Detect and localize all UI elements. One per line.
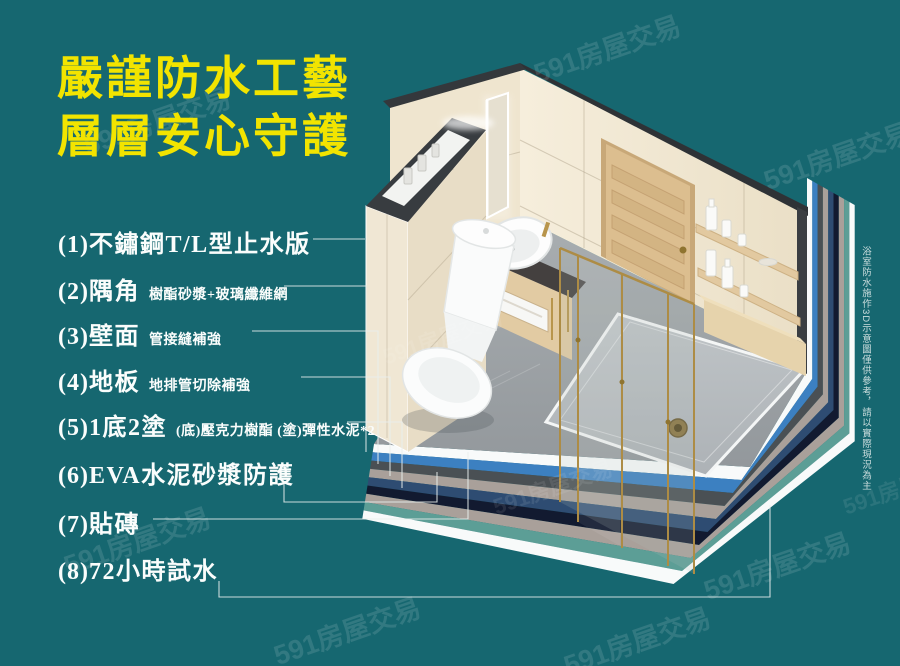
list-item-5: (5) 1底2塗 (底)壓克力樹酯 (塗)彈性水泥*2 (58, 407, 375, 442)
flush-button (483, 228, 489, 234)
item-label: EVA水泥砂漿防護 (89, 455, 294, 490)
page-title: 嚴謹防水工藝 層層安心守護 (57, 50, 351, 166)
item-label: 隅角 (89, 271, 140, 306)
glass-sheen (578, 256, 620, 546)
list-item-2: (2) 隅角 樹酯砂漿+玻璃纖維網 (58, 271, 288, 306)
title-line-2: 層層安心守護 (57, 108, 351, 166)
item-note: 樹酯砂漿+玻璃纖維網 (149, 284, 288, 304)
item-label: 壁面 (89, 316, 140, 351)
item-number: (7) (58, 512, 89, 539)
item-number: (4) (58, 370, 89, 397)
item-label: 不鏽鋼T/L型止水版 (89, 224, 311, 259)
niche-light-glow (442, 116, 494, 130)
list-item-6: (6) EVA水泥砂漿防護 (58, 455, 294, 490)
item-label: 72小時試水 (89, 551, 218, 586)
item-number: (1) (58, 232, 89, 259)
item-label: 地板 (89, 362, 140, 397)
list-item-1: (1) 不鏽鋼T/L型止水版 (58, 224, 311, 259)
led-mirror (487, 93, 508, 218)
item-label: 1底2塗 (89, 407, 167, 442)
item-label: 貼磚 (89, 504, 140, 539)
list-item-4: (4) 地板 地排管切除補強 (58, 362, 250, 397)
list-item-7: (7) 貼磚 (58, 504, 140, 539)
list-item-8: (8) 72小時試水 (58, 551, 218, 586)
poster: 591房屋交易 591房屋交易 591房屋交易 591房屋交易 591房屋交易 … (0, 0, 900, 666)
callout-line-3 (252, 331, 378, 464)
list-item-3: (3) 壁面 管接縫補強 (58, 316, 221, 351)
door-handle (680, 247, 687, 254)
item-note: 地排管切除補強 (149, 375, 251, 395)
item-number: (2) (58, 279, 89, 306)
item-note: (底)壓克力樹酯 (塗)彈性水泥*2 (176, 420, 375, 440)
item-number: (3) (58, 324, 89, 351)
title-line-1: 嚴謹防水工藝 (57, 50, 351, 108)
item-note: 管接縫補強 (149, 329, 222, 349)
item-number: (6) (58, 463, 89, 490)
item-number: (5) (58, 415, 89, 442)
disclaimer-vertical-note: 浴室防水施作3D示意圖僅供參考，請以實際現況為主 (858, 246, 872, 491)
item-number: (8) (58, 559, 89, 586)
